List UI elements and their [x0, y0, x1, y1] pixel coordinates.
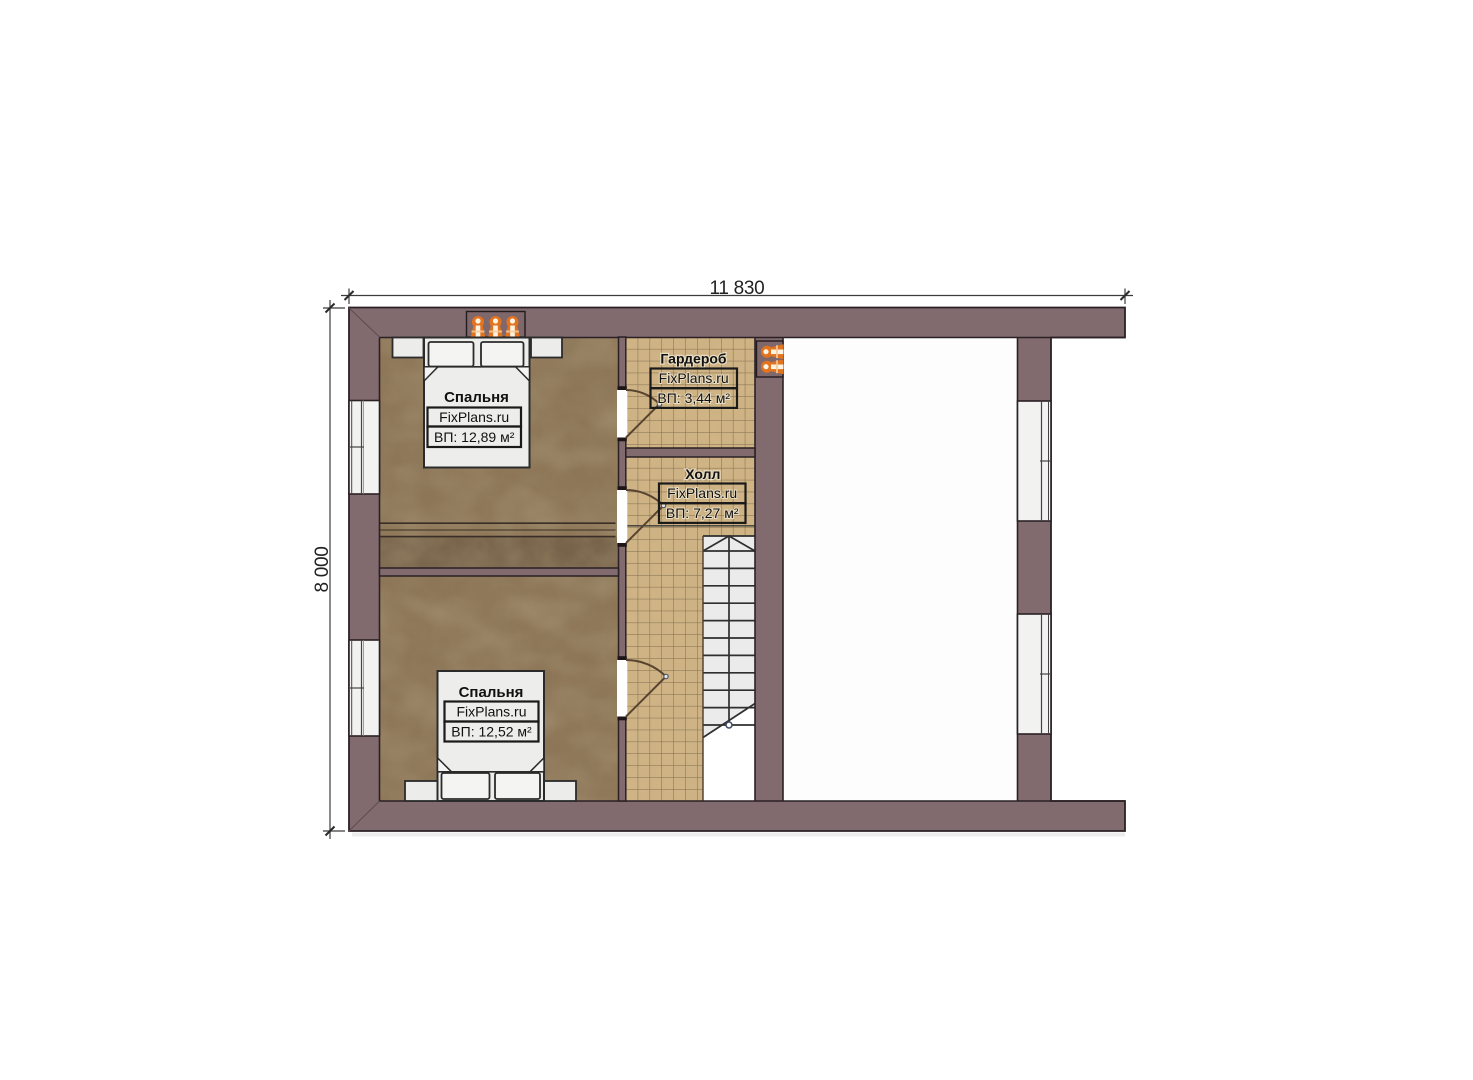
svg-text:Гардероб: Гардероб	[660, 351, 727, 367]
svg-text:Холл: Холл	[685, 466, 720, 482]
svg-text:ВП: 7,27 м²: ВП: 7,27 м²	[666, 505, 739, 521]
svg-text:FixPlans.ru: FixPlans.ru	[667, 485, 737, 501]
svg-text:Спальня: Спальня	[459, 684, 524, 701]
svg-text:ВП: 3,44 м²: ВП: 3,44 м²	[657, 390, 730, 406]
svg-text:FixPlans.ru: FixPlans.ru	[659, 370, 729, 386]
svg-text:FixPlans.ru: FixPlans.ru	[456, 704, 526, 720]
svg-text:8 000: 8 000	[312, 546, 333, 592]
svg-text:Спальня: Спальня	[444, 389, 509, 406]
svg-text:ВП: 12,89 м²: ВП: 12,89 м²	[434, 429, 515, 445]
svg-text:ВП: 12,52 м²: ВП: 12,52 м²	[451, 724, 532, 740]
svg-text:11 830: 11 830	[710, 278, 765, 299]
svg-text:FixPlans.ru: FixPlans.ru	[439, 409, 509, 425]
